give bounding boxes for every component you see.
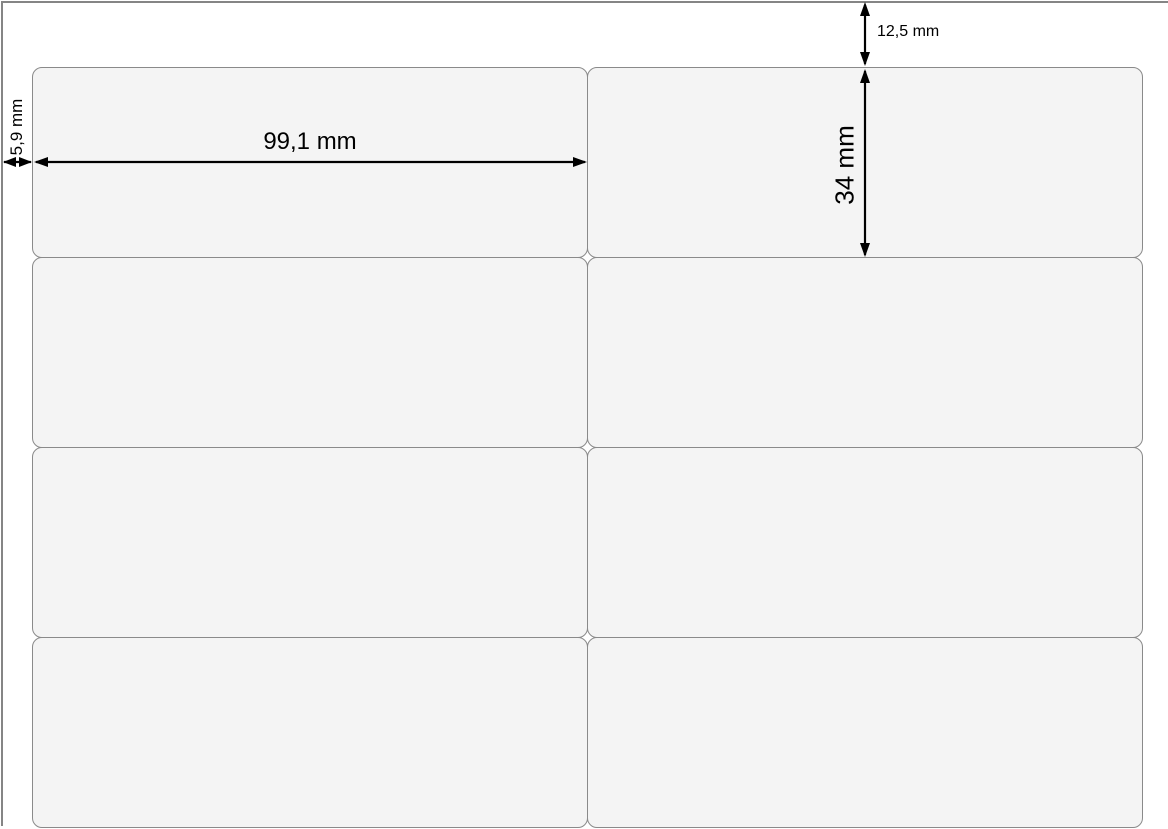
label-width-dimension-label: 99,1 mm (160, 128, 460, 156)
label-cell (587, 67, 1143, 258)
label-grid (32, 67, 1144, 829)
top-margin-dimension-label: 12,5 mm (877, 23, 939, 41)
label-cell (32, 257, 588, 448)
label-cell (587, 257, 1143, 448)
label-cell (587, 447, 1143, 638)
top-margin-arrow (860, 2, 870, 66)
label-cell (587, 637, 1143, 828)
label-cell (32, 637, 588, 828)
left-margin-dimension-label: 5,9 mm (7, 99, 27, 156)
label-height-dimension-label: 34 mm (830, 125, 861, 204)
label-cell (32, 67, 588, 258)
label-sheet-page: { "sheet": { "columns": 2, "visible_rows… (0, 0, 1168, 826)
left-margin-arrow (3, 157, 32, 167)
label-cell (32, 447, 588, 638)
